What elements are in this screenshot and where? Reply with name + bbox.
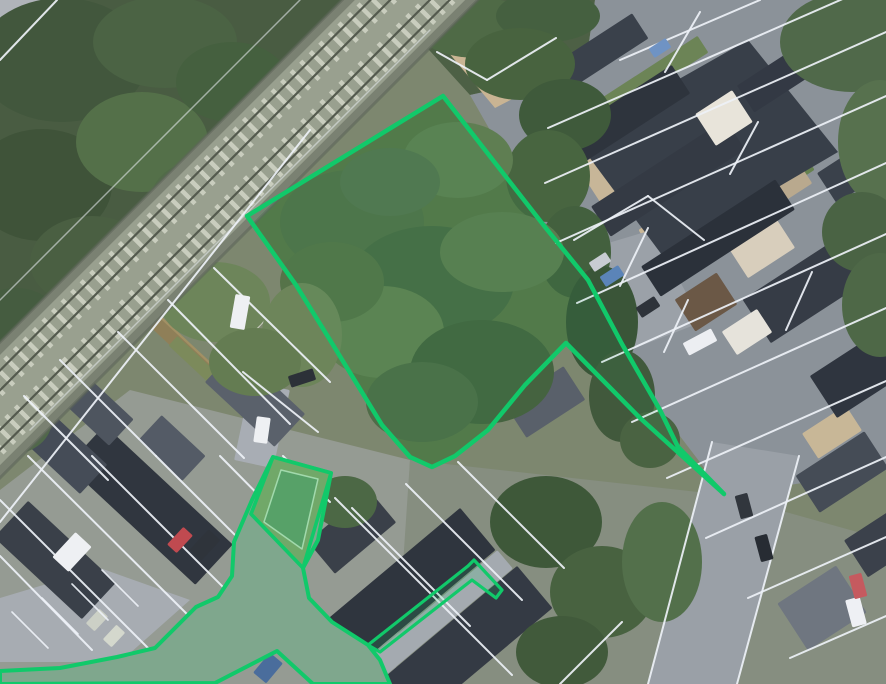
aerial-map-canvas[interactable] (0, 0, 886, 684)
aerial-map-view[interactable] (0, 0, 886, 684)
